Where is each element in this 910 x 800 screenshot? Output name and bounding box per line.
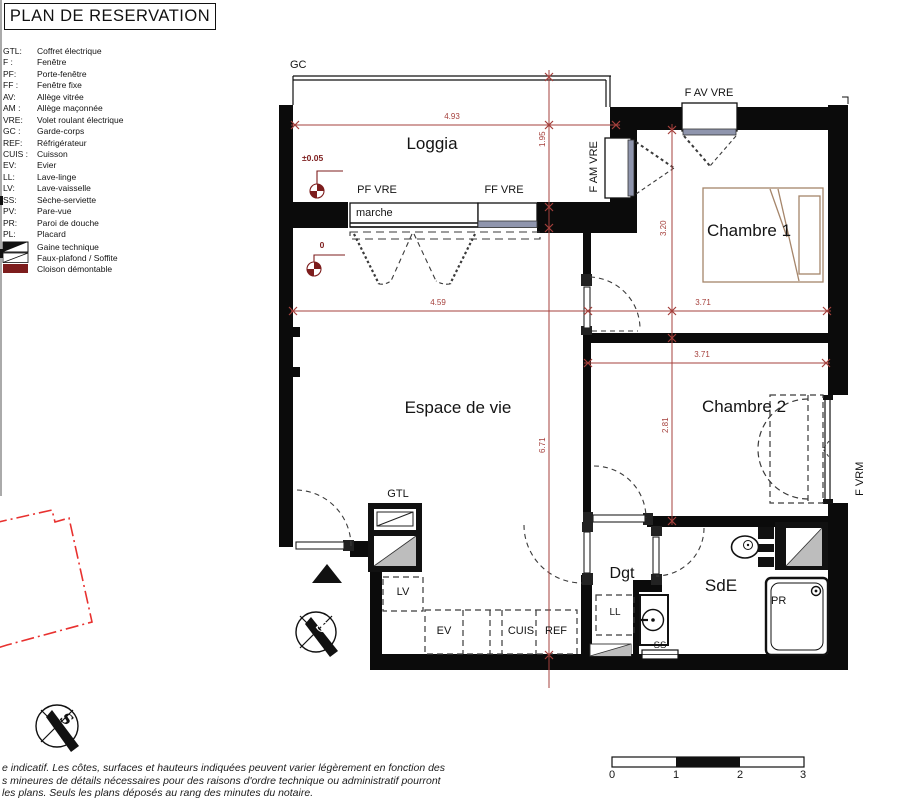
legend-item: GTL:Coffret électrique (3, 46, 183, 57)
legend-item: FF :Fenêtre fixe (3, 80, 183, 91)
scale-tick-2: 2 (734, 770, 746, 782)
level-value-loggia: ±0.05 (302, 154, 323, 163)
disclaimer-line: e indicatif. Les côtes, surfaces et haut… (2, 762, 445, 775)
door-swing-arcs (297, 277, 704, 583)
legend-item: PF:Porte-fenêtre (3, 69, 183, 80)
label-ll: LL (596, 608, 634, 619)
garde-corps (293, 76, 611, 107)
legend-item: GC :Garde-corps (3, 126, 183, 137)
page-title: PLAN DE RESERVATION (4, 3, 216, 30)
legend-item: SS:Sèche-serviette (3, 195, 183, 206)
legend-symbol-label: Cloison démontable (37, 264, 187, 275)
scale-bar (612, 757, 804, 767)
legend-item: PR:Paroi de douche (3, 218, 183, 229)
label-cuis: CUIS (501, 626, 541, 638)
legend-item: AM :Allège maçonnée (3, 103, 183, 114)
scale-tick-0: 0 (606, 770, 618, 782)
door-leaf-entrance (296, 542, 344, 549)
legend-item: CUIS :Cuisson (3, 149, 183, 160)
label-f-am-vre: F AM VRE (589, 137, 601, 197)
level-marker-icon (307, 255, 345, 276)
dim-living-height: 6.71 (539, 425, 547, 465)
label-ff-vre: FF VRE (474, 185, 534, 197)
legend-item: PL:Placard (3, 229, 183, 240)
label-f-av-vre: F AV VRE (669, 88, 749, 100)
legend-item: PV:Pare-vue (3, 206, 183, 217)
towel-dryer-icon (642, 650, 678, 659)
legend-item: EV:Evier (3, 160, 183, 171)
disclaimer-text: e indicatif. Les côtes, surfaces et haut… (2, 762, 445, 800)
window-f-am-vre-box (605, 138, 631, 198)
window-f-av-vre-box (682, 103, 737, 131)
legend-item: AV:Allège vitrée (3, 92, 183, 103)
legend-symbols: Gaine technique Faux-plafond / Soffite C… (37, 242, 187, 274)
label-marche: marche (356, 208, 393, 220)
dim-loggia-width: 4.93 (432, 113, 472, 121)
room-label-bathroom: SdE (691, 577, 751, 595)
floor-plan-page: { "title": "PLAN DE RESERVATION", "legen… (0, 0, 910, 800)
legend-swatches (3, 242, 28, 273)
scale-tick-3: 3 (797, 770, 809, 782)
window-f-vrm (823, 395, 833, 504)
legend-item: F :Fenêtre (3, 57, 183, 68)
level-marker-icon (310, 171, 343, 198)
room-label-living: Espace de vie (388, 399, 528, 417)
label-ref: REF (536, 626, 576, 638)
room-label-bedroom2: Chambre 2 (684, 398, 804, 416)
legend-symbol-label: Gaine technique (37, 242, 187, 253)
legend: GTL:Coffret électrique F :Fenêtre PF:Por… (3, 46, 183, 240)
washbasin-icon (640, 595, 668, 645)
room-label-hallway: Dgt (592, 566, 652, 583)
shower-icon (766, 578, 828, 655)
wc-frame (758, 527, 774, 567)
label-f-vrm: F VRM (855, 456, 867, 502)
label-ss: SS (645, 641, 675, 651)
dim-loggia-depth: 1.95 (539, 119, 547, 159)
label-garde-corps: GC (290, 60, 307, 72)
disclaimer-line: les plans. Seuls les plans déposés au ra… (2, 787, 445, 800)
dim-living-width: 4.59 (418, 299, 458, 307)
legend-item: VRE:Volet roulant électrique (3, 115, 183, 126)
label-gtl: GTL (378, 489, 418, 501)
legend-item: REF:Réfrigérateur (3, 138, 183, 149)
label-pr: PR (771, 596, 786, 608)
dim-bedroom1-height: 3.20 (660, 208, 668, 248)
toilet-icon (732, 536, 759, 558)
door-leaves (296, 287, 659, 574)
door-leaf-bathroom (653, 537, 659, 574)
disclaimer-line: s mineures de détails nécessaires pour d… (2, 775, 445, 788)
legend-item: LL:Lave-linge (3, 172, 183, 183)
room-label-loggia: Loggia (392, 135, 472, 153)
parcel-outline (0, 510, 92, 649)
legend-symbol-label: Faux-plafond / Soffite (37, 253, 187, 264)
entrance-arrow-icon (312, 564, 342, 583)
doors (296, 274, 704, 585)
label-pf-vre: PF VRE (347, 185, 407, 197)
label-lv: LV (383, 587, 423, 599)
legend-item: LV:Lave-vaisselle (3, 183, 183, 194)
dim-bedroom1-width: 3.71 (683, 299, 723, 307)
dim-bedroom2-width: 3.71 (682, 351, 722, 359)
door-leaf-bedroom2 (593, 515, 645, 522)
door-leaf-hallway (584, 532, 590, 573)
label-ev: EV (424, 626, 464, 638)
room-label-bedroom1: Chambre 1 (689, 222, 809, 240)
dim-bedroom2-height: 2.81 (662, 405, 670, 445)
level-value-living: 0 (316, 241, 328, 250)
scale-tick-1: 1 (670, 770, 682, 782)
